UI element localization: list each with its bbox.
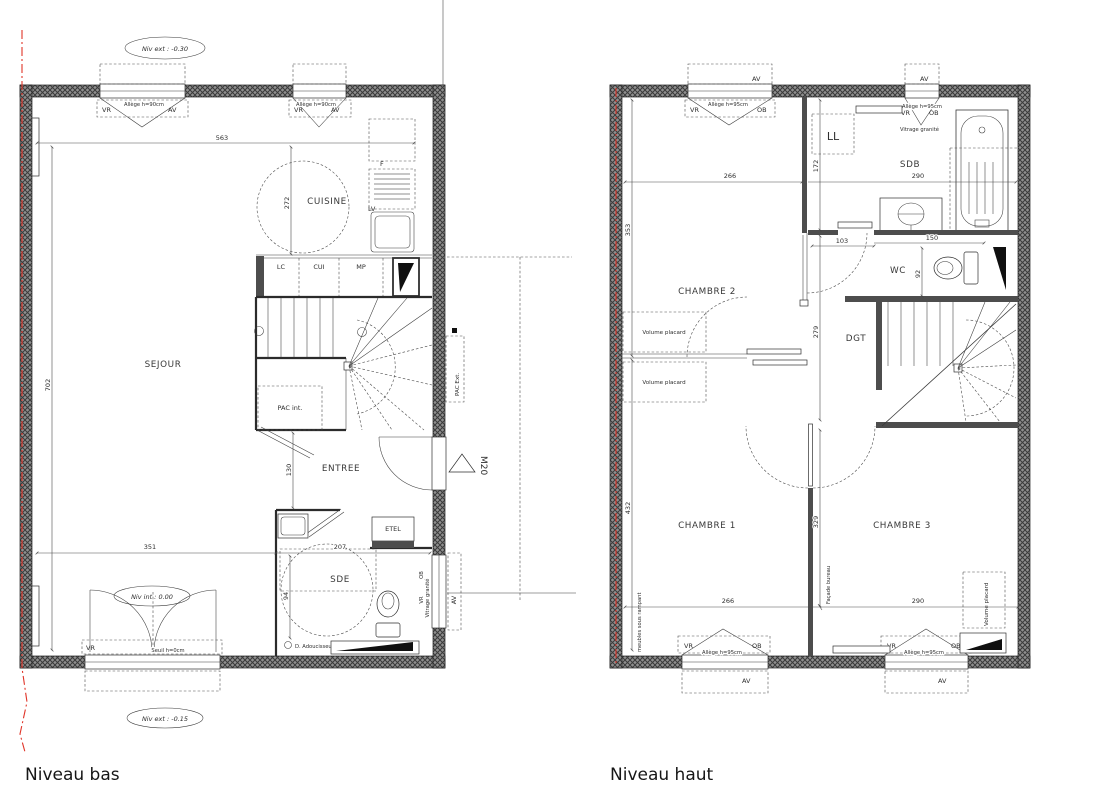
pac-ext-unit: PAC Ext. [446,328,464,402]
room-label-sdb: SDB [900,160,920,170]
dim-92: 92 [914,270,922,278]
window-allege-label: Allège h=95cm [702,649,742,656]
dim-279: 279 [812,326,820,338]
staircase-bas: PAC int. [255,297,433,458]
window-label-vr: VR [901,109,910,117]
window-label-av: AV [168,106,177,114]
window-label-av: AV [742,677,751,685]
toilet [377,591,399,617]
window-allege-label: Allège h=90cm [296,101,336,108]
door-marker-m20: M20 [449,454,488,475]
dim-329: 329 [812,516,820,528]
window-label-ob: OB [929,109,939,117]
room-label-dgt: DGT [846,334,866,344]
turning-circle [257,161,349,253]
room-label-cuisine: CUISINE [307,197,347,207]
m20-label: M20 [478,456,488,475]
window-label-vr: VR [690,106,699,114]
window-allege-label: Allège h=95cm [902,103,942,110]
wc-area: WC [890,247,1006,290]
etel-label: ETEL [385,525,401,533]
window-label-ob: OB [757,106,767,114]
radiator [833,646,890,653]
dim-266-bottom: 266 [722,597,734,605]
dim-272: 272 [283,197,291,209]
window-top-1-bas: VR AV Allège h=90cm [97,64,188,127]
entry-door-opening-bas [379,437,446,490]
window-label-vr: VR [86,644,95,652]
window-top-2-haut: AV VR OB Allège h=95cm Vitrage granité [900,64,942,133]
window-allege-label: Allège h=95cm [708,101,748,108]
pac-ext-label: PAC Ext. [455,373,461,396]
window-allege-label: Allège h=90cm [124,101,164,108]
window-label-vr: VR [684,642,693,650]
dim-702: 702 [44,379,52,391]
duct-marker [993,247,1006,290]
fridge-label: F [380,160,384,168]
closet-label-lc: LC [277,263,286,271]
dim-266-top: 266 [724,172,736,180]
window-bottom-1-haut: VR OB Allège h=95cm AV [678,629,770,693]
plan-niveau-bas: VR AV Allège h=90cm VR AV Allège h=90cm [20,0,576,752]
pac-int-label: PAC int. [278,404,303,412]
toilet [934,257,962,279]
room-label-chambre3: CHAMBRE 3 [873,521,931,531]
facade-bureau-label: Façade bureau [826,566,832,604]
window-vitrage-label: Vitrage granité [424,579,431,618]
window-bottom-2-haut: VR OB Allège h=95cm AV [881,629,973,693]
room-label-ll: LL [827,130,840,143]
floor-plan-document: VR AV Allège h=90cm VR AV Allège h=90cm [0,0,1114,800]
projection-lines [447,257,576,601]
floor-plan-drawing: VR AV Allège h=90cm VR AV Allège h=90cm [0,0,1114,800]
room-label-sejour: SEJOUR [145,360,182,370]
closet-label-mp: MP [356,263,366,271]
window-seuil-label: Seuil h=0cm [151,648,184,654]
radiator [32,586,39,646]
dim-130: 130 [285,464,293,476]
dim-351: 351 [144,543,156,551]
window-top-2-bas: VR AV Allège h=90cm [289,64,351,127]
radiator [32,118,39,176]
window-label-ob: OB [419,571,425,579]
dim-290-bottom: 290 [912,597,924,605]
window-label-av: AV [450,595,458,604]
turning-circle [281,544,373,636]
plan-title-niveau-haut: Niveau haut [610,765,714,785]
niv-ext-bottom: Niv ext : -0.15 [142,715,188,723]
window-label-ob: OB [951,642,961,650]
window-right-sde-bas: AV VR OB Vitrage granité [419,553,461,630]
closet-label-cui: CUI [313,263,324,271]
level-markers-bas: Niv ext : -0.30 Niv int : 0.00 Niv ext :… [114,37,205,728]
dishwasher-label: LV [368,205,376,213]
dim-172: 172 [812,160,820,172]
window-label-ob: OB [752,642,762,650]
dim-563: 563 [216,134,228,142]
bathtub [950,110,1018,232]
washbasin-sdb [880,198,942,232]
dim-150: 150 [926,234,938,242]
kitchen-area: F LV CUISINE [257,119,415,253]
closet-band: LC CUI MP [256,255,432,297]
dim-353: 353 [624,224,632,236]
window-label-vr: VR [102,106,111,114]
room-label-chambre2: CHAMBRE 2 [678,287,736,297]
dim-103: 103 [836,237,848,245]
doors-haut [687,297,875,488]
dim-290-top: 290 [912,172,924,180]
window-label-av: AV [920,75,929,83]
room-label-chambre1: CHAMBRE 1 [678,521,736,531]
room-label-wc: WC [890,266,906,276]
meubles-label: meubles sous rampant [637,593,643,652]
dim-207: 207 [334,543,346,551]
placard-label: Volume placard [984,582,990,626]
bay-window-bottom-bas: VR Seuil h=0cm [82,590,222,691]
sde-area: ETEL D. Adoucisseur ENTREE SDE [276,464,432,656]
radiator [856,106,902,113]
dim-432: 432 [624,502,632,514]
staircase-haut [882,302,1016,426]
dim-94: 94 [282,592,290,600]
adoucisseur-label: D. Adoucisseur [295,644,335,650]
room-label-sde: SDE [330,575,350,585]
window-allege-label: Allège h=95cm [904,649,944,656]
window-label-av: AV [938,677,947,685]
exterior-walls-bas [20,85,445,668]
room-label-entree: ENTREE [322,464,360,474]
window-top-1-haut: AV VR OB Allège h=95cm [685,64,775,125]
window-vitrage-label: Vitrage granité [900,126,939,133]
niv-ext-top: Niv ext : -0.30 [142,45,188,53]
placard-label: Volume placard [642,330,686,336]
plan-niveau-haut: AV VR OB Allège h=95cm AV VR OB Allège h… [610,64,1030,693]
niv-int: Niv int : 0.00 [131,593,173,601]
placard-chambre3: Volume placard [960,572,1006,653]
placards-chambre2: Volume placard Volume placard [623,312,706,402]
plan-title-niveau-bas: Niveau bas [25,765,120,785]
placard-label: Volume placard [642,380,686,386]
window-label-av: AV [752,75,761,83]
